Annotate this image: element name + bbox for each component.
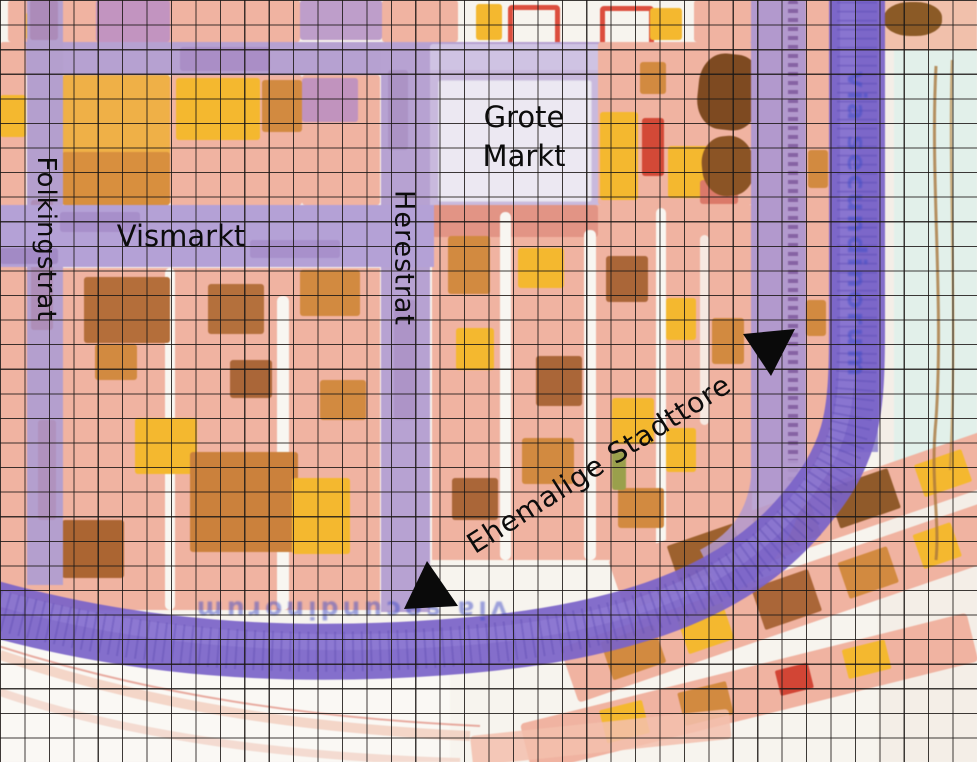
ring-road (0, 0, 857, 652)
historical-city-map: via secundinorum via secundinorum Grote … (0, 0, 977, 762)
label-vismarkt: Vismarkt (117, 219, 245, 253)
label-grote-markt-line2: Markt (483, 137, 566, 176)
label-herestrat: Herestrat (389, 190, 420, 326)
canal-bank-line (934, 66, 939, 560)
label-grote-markt-line1: Grote (483, 98, 566, 137)
faint-street-name-east: via secundinorum (841, 71, 871, 379)
faint-street-name-south: via secundinorum (193, 596, 507, 625)
label-grote-markt: Grote Markt (483, 98, 566, 176)
canal-bank-line (950, 60, 953, 470)
label-folkingstrat: Folkingstrat (31, 157, 61, 322)
